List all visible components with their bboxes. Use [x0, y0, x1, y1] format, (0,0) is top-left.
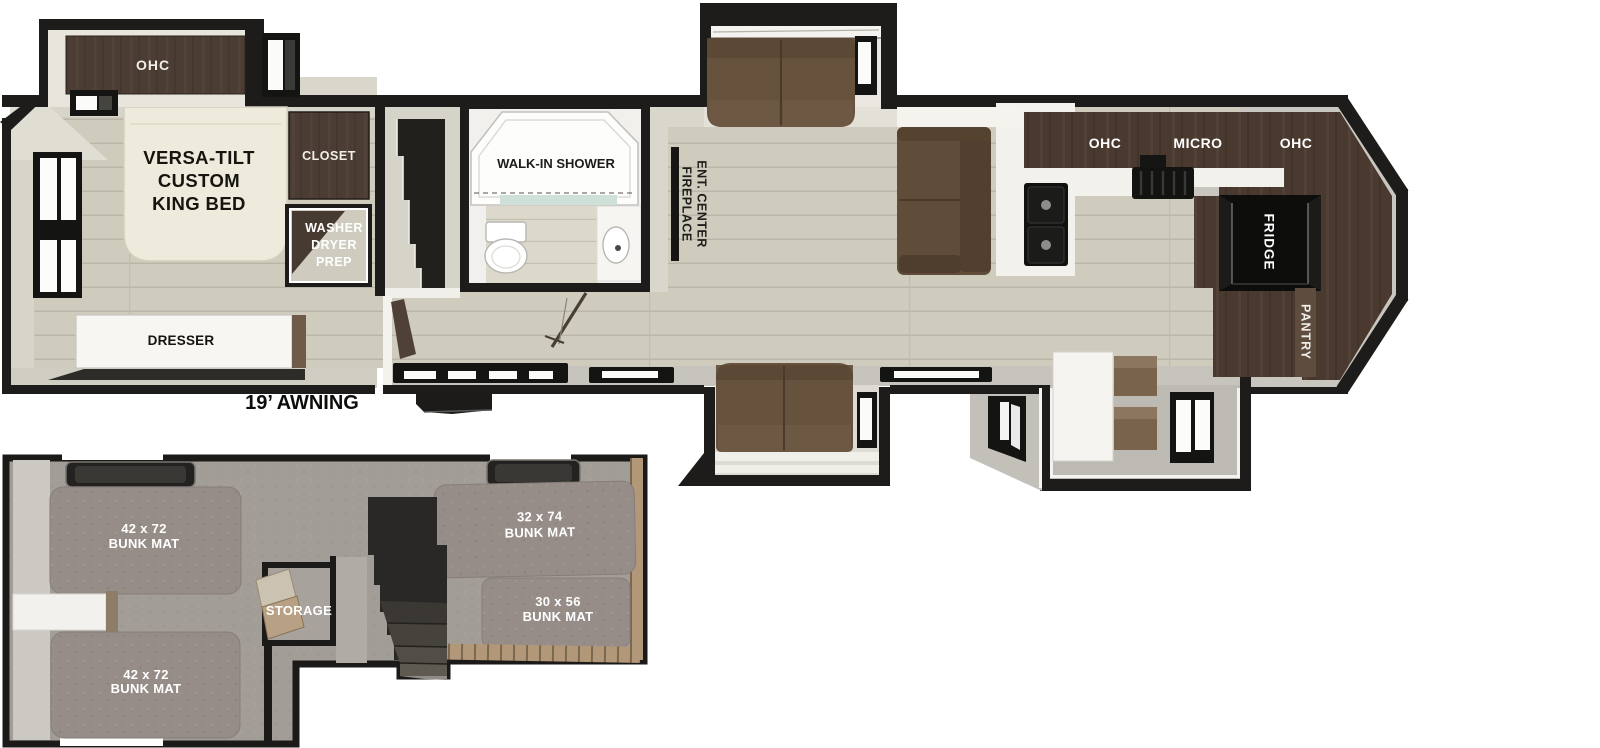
svg-text:42 x 72: 42 x 72 — [123, 667, 168, 682]
svg-text:VERSA-TILT: VERSA-TILT — [143, 147, 255, 168]
svg-text:STORAGE: STORAGE — [266, 603, 332, 618]
svg-text:42 x 72: 42 x 72 — [121, 521, 166, 536]
svg-text:BUNK MAT: BUNK MAT — [505, 524, 576, 540]
svg-text:32 x 74: 32 x 74 — [517, 508, 563, 524]
svg-text:CLOSET: CLOSET — [302, 149, 356, 163]
svg-text:BUNK MAT: BUNK MAT — [111, 681, 182, 696]
svg-text:30 x 56: 30 x 56 — [535, 594, 580, 609]
svg-text:OHC: OHC — [1280, 135, 1313, 151]
svg-text:OHC: OHC — [136, 57, 170, 73]
svg-text:BUNK MAT: BUNK MAT — [109, 536, 180, 551]
svg-text:WALK-IN SHOWER: WALK-IN SHOWER — [497, 156, 615, 171]
svg-text:WASHER: WASHER — [305, 221, 363, 235]
svg-text:MICRO: MICRO — [1173, 135, 1222, 151]
svg-text:FIREPLACE: FIREPLACE — [680, 166, 694, 241]
svg-text:PREP: PREP — [316, 255, 352, 269]
svg-text:BUNK MAT: BUNK MAT — [523, 609, 594, 624]
svg-text:OHC: OHC — [1089, 135, 1122, 151]
svg-text:19’ AWNING: 19’ AWNING — [245, 392, 359, 414]
svg-text:CUSTOM: CUSTOM — [158, 170, 240, 191]
svg-text:FRIDGE: FRIDGE — [1261, 213, 1276, 270]
svg-text:ENT. CENTER: ENT. CENTER — [695, 160, 709, 247]
svg-text:DRESSER: DRESSER — [148, 333, 215, 348]
svg-text:PANTRY: PANTRY — [1299, 304, 1313, 360]
svg-text:KING BED: KING BED — [152, 193, 246, 214]
svg-text:DRYER: DRYER — [311, 238, 357, 252]
